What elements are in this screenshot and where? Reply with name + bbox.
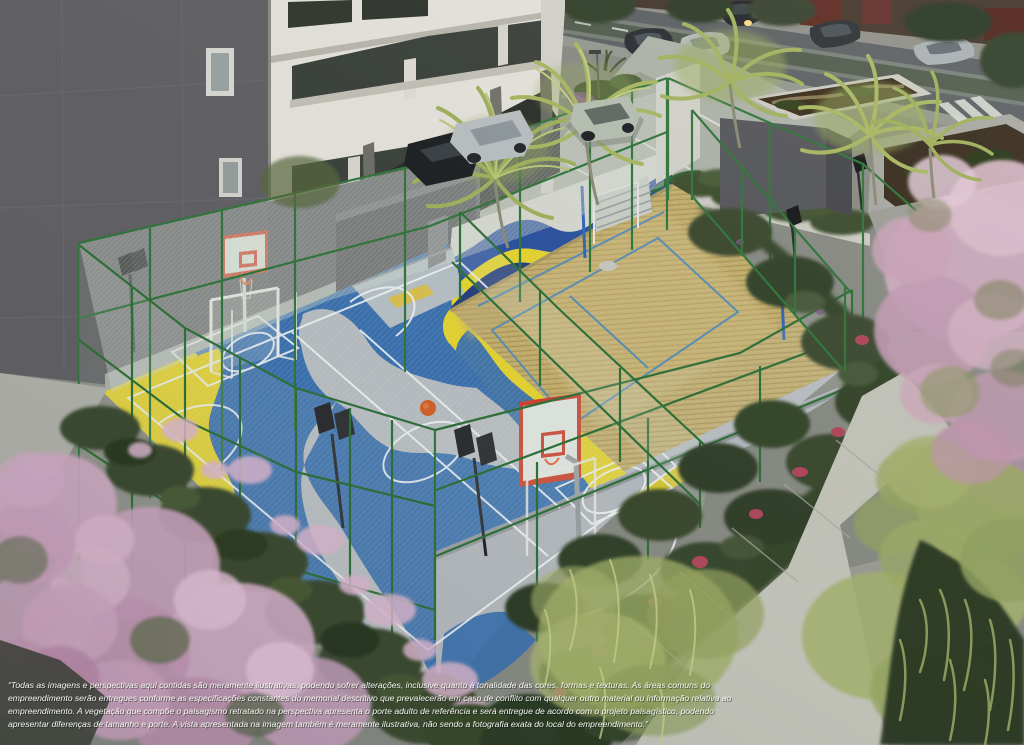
svg-text:“Todas as imagens e perspectiv: “Todas as imagens e perspectivas aqui co… (8, 680, 710, 690)
svg-text:empreendimento serão entregues: empreendimento serão entregues conforme … (8, 693, 731, 703)
svg-text:apresentar diferenças de taman: apresentar diferenças de tamanho e porte… (8, 719, 649, 729)
svg-text:empreendimento. A vegetação qu: empreendimento. A vegetação que compõe o… (8, 706, 714, 716)
